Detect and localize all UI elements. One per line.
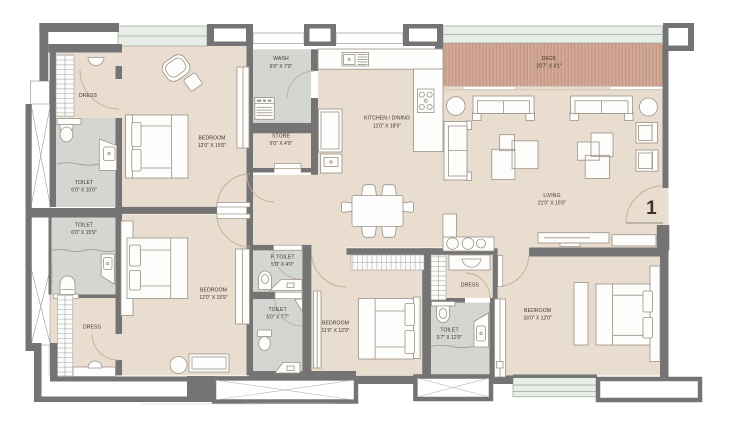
svg-text:KITCHEN / DINING: KITCHEN / DINING xyxy=(364,116,410,122)
svg-text:11'0" X 12'0": 11'0" X 12'0" xyxy=(322,328,350,334)
svg-text:11'0" X 18'9": 11'0" X 18'9" xyxy=(373,124,401,130)
svg-text:5'0" X 7'7": 5'0" X 7'7" xyxy=(266,315,289,321)
svg-text:DRESS: DRESS xyxy=(461,283,480,289)
svg-text:6'0" X 4'0": 6'0" X 4'0" xyxy=(270,141,293,147)
svg-text:DRESS: DRESS xyxy=(79,93,98,99)
svg-text:12'0" X 15'0": 12'0" X 15'0" xyxy=(198,143,226,149)
svg-text:BEDROOM: BEDROOM xyxy=(198,136,225,142)
svg-text:LIVING: LIVING xyxy=(543,193,560,199)
svg-text:5'0" X 4'0": 5'0" X 4'0" xyxy=(271,262,294,268)
svg-text:BEDROOM: BEDROOM xyxy=(524,308,551,314)
svg-text:STORE: STORE xyxy=(272,134,290,140)
svg-text:6'0" X 15'9": 6'0" X 15'9" xyxy=(71,230,97,236)
svg-text:21'0" X 15'0": 21'0" X 15'0" xyxy=(538,201,566,207)
svg-text:DRESS: DRESS xyxy=(83,325,102,331)
svg-text:BEDROOM: BEDROOM xyxy=(200,288,227,294)
svg-text:TOILET: TOILET xyxy=(75,223,93,229)
svg-text:TOILET: TOILET xyxy=(75,180,93,186)
svg-text:TOILET: TOILET xyxy=(269,307,287,313)
svg-text:5'7" X 12'0": 5'7" X 12'0" xyxy=(437,335,463,341)
svg-text:WASH: WASH xyxy=(273,56,289,62)
svg-text:DECK: DECK xyxy=(542,56,557,62)
svg-text:BEDROOM: BEDROOM xyxy=(322,321,349,327)
svg-text:6'0" X 7'0": 6'0" X 7'0" xyxy=(270,64,293,70)
svg-text:1: 1 xyxy=(646,198,657,219)
svg-text:6'0" X 15'0": 6'0" X 15'0" xyxy=(71,188,97,194)
svg-text:20'7" X 4'1": 20'7" X 4'1" xyxy=(536,64,562,70)
svg-text:12'0" X 15'9": 12'0" X 15'9" xyxy=(199,295,227,301)
svg-text:16'0" X 12'0": 16'0" X 12'0" xyxy=(523,316,551,322)
svg-text:P. TOILET: P. TOILET xyxy=(270,255,294,261)
svg-text:TOILET: TOILET xyxy=(440,328,458,334)
